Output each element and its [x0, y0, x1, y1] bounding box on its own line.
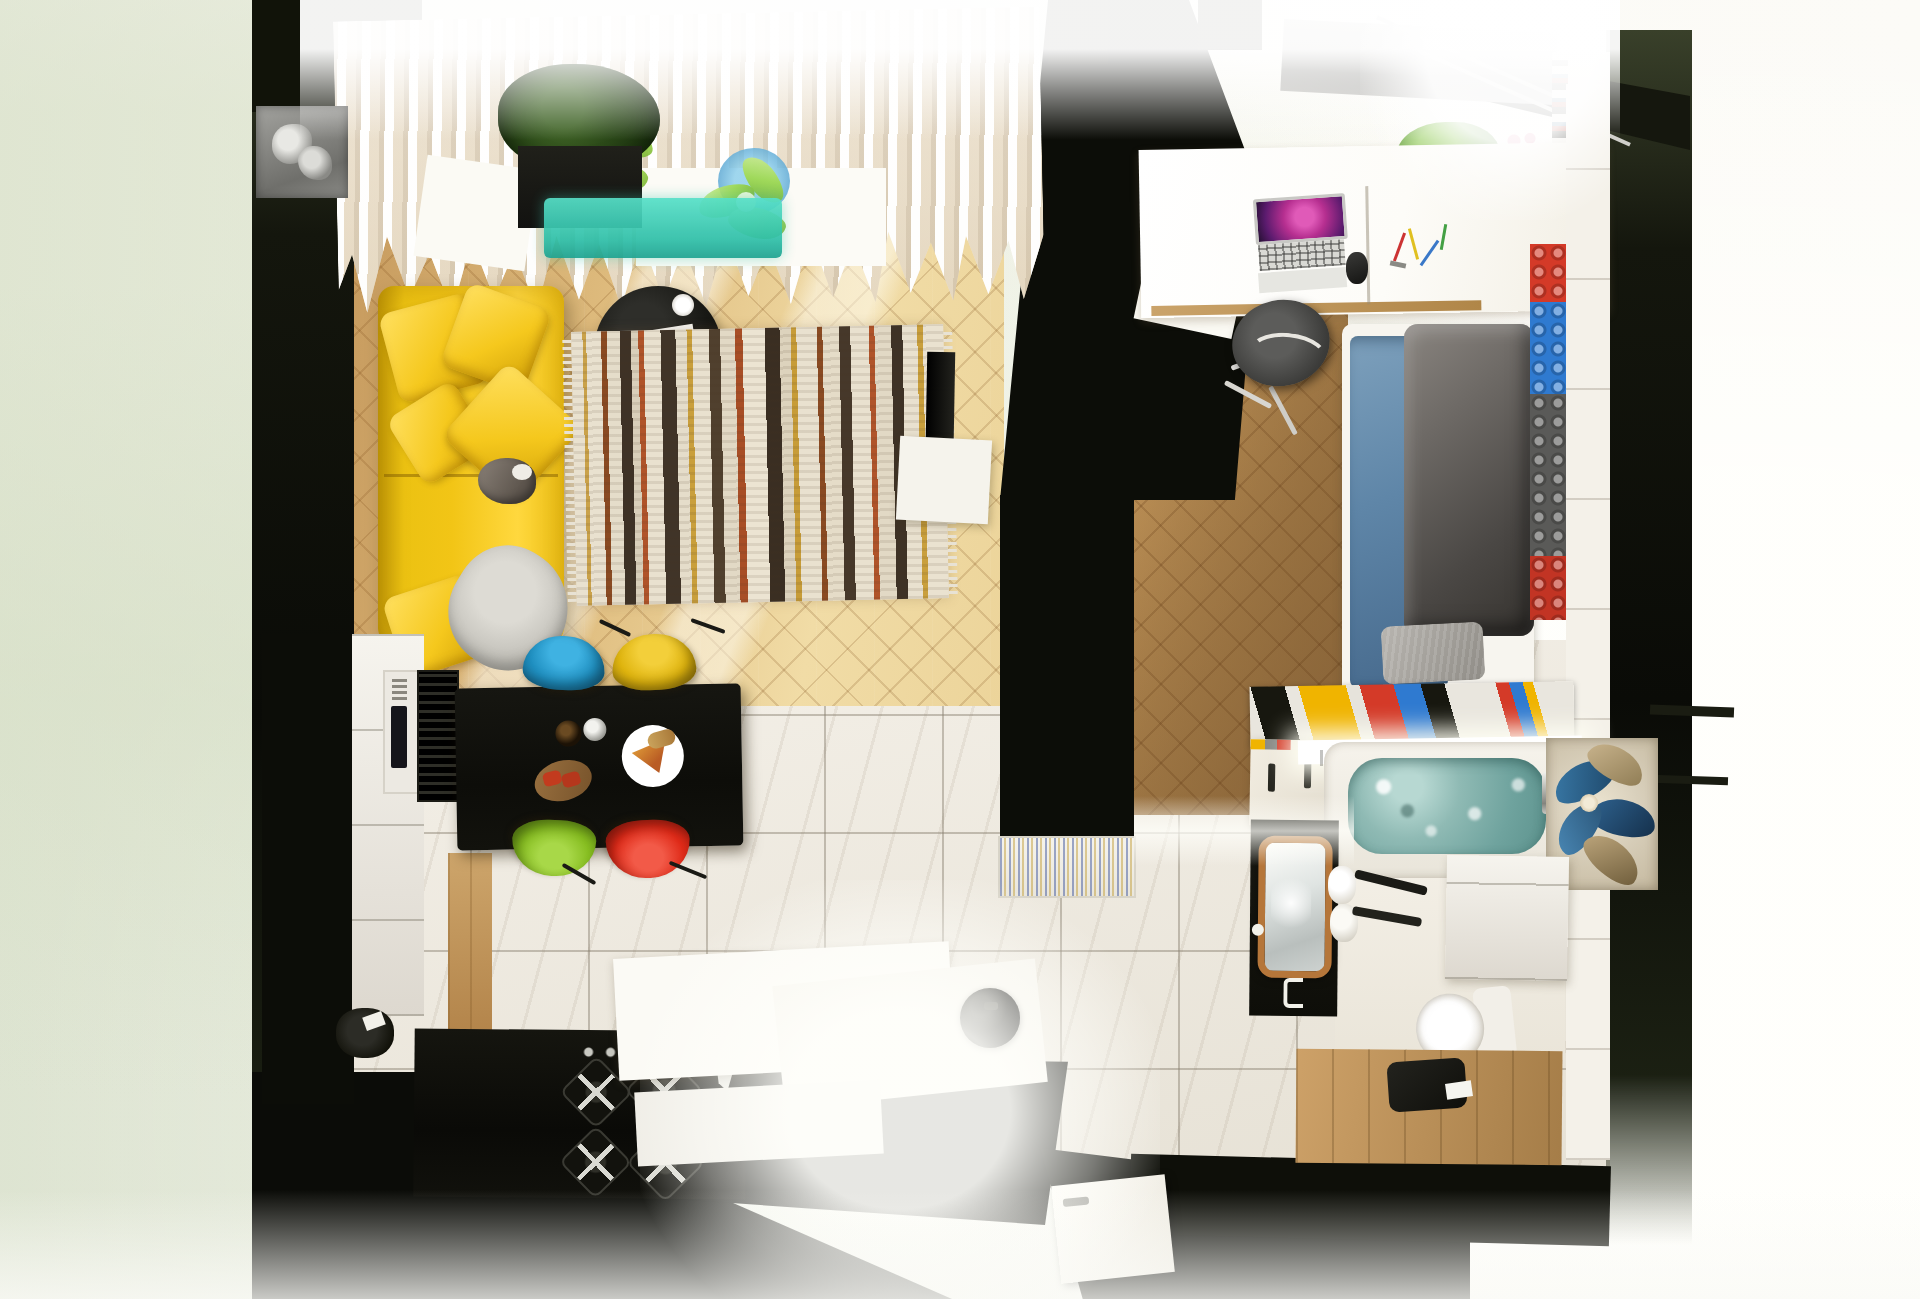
- coffee-cup: [672, 294, 694, 316]
- ac-radiator-unit: [256, 106, 348, 198]
- microwave-window: [391, 706, 407, 768]
- mirror-glare: [1271, 873, 1312, 933]
- patterned-doormat: [998, 836, 1136, 898]
- wardrobe-lego-chip: [1251, 739, 1291, 750]
- bathroom-bottom-wall: [1129, 1154, 1611, 1247]
- office-chair: [1220, 300, 1350, 450]
- skylight-bar-2: [1198, 0, 1262, 50]
- door-hook: [1283, 978, 1303, 1008]
- boho-striped-rug: [571, 324, 949, 606]
- bruschetta-1: [542, 769, 563, 787]
- computer-mouse: [1346, 252, 1368, 284]
- lego-gray: [1530, 394, 1568, 556]
- gas-burner-3: [559, 1125, 633, 1199]
- chair-leg-2: [1268, 385, 1298, 435]
- chair-piping: [1243, 329, 1332, 389]
- sink-faucet: [336, 1008, 394, 1058]
- wine-bottle: [555, 720, 581, 746]
- rolled-towel-1: [1328, 866, 1356, 904]
- lego-red-bottom: [1530, 556, 1568, 620]
- right-exterior-wall: [1606, 30, 1692, 1245]
- wardrobe-handle-1: [1268, 764, 1275, 792]
- built-in-microwave: [383, 670, 419, 794]
- pizza-plate: [621, 725, 684, 788]
- microwave-buttons: [392, 678, 407, 700]
- vacuum-button: [984, 1002, 998, 1010]
- bruschetta-board: [530, 754, 596, 808]
- bed: [1342, 324, 1534, 696]
- pizza-slice-2: [646, 727, 677, 750]
- entry-door: [1051, 1174, 1175, 1283]
- gray-duvet: [1404, 324, 1534, 636]
- lego-trim-bar: [1250, 681, 1575, 747]
- gray-pillow: [1381, 621, 1486, 684]
- desk-seam: [1365, 186, 1370, 304]
- door-knob: [1252, 924, 1264, 936]
- skylight-bar-1: [1048, 0, 1108, 64]
- teal-glass-aquarium: [544, 198, 782, 258]
- water-caustics: [1348, 758, 1546, 854]
- laptop-screen: [1253, 193, 1348, 245]
- tv-console: [896, 436, 992, 525]
- door-handle: [1063, 1196, 1090, 1207]
- metal-flower-decor-2: [298, 146, 332, 180]
- dining-table: [455, 684, 744, 851]
- right-interior-wall: [1566, 84, 1610, 1160]
- cat: [478, 458, 536, 504]
- white-vanity: [1445, 855, 1569, 981]
- apartment-render: [0, 0, 1920, 1299]
- black-vent-grille: [417, 670, 459, 802]
- bruschetta-2: [561, 770, 582, 788]
- bath-water: [1348, 758, 1546, 854]
- cat-white-patch: [512, 464, 532, 480]
- mirror-door: [1249, 820, 1339, 1017]
- wood-floor-strip: [448, 853, 492, 1041]
- bathroom-left-wall: [1000, 495, 1134, 845]
- soap-card: [362, 1011, 386, 1031]
- laptop: [1253, 193, 1353, 293]
- metal-shaker: [583, 718, 606, 741]
- lego-blue: [1530, 302, 1568, 394]
- laptop-keyboard: [1258, 239, 1346, 271]
- mural-center: [1580, 794, 1598, 812]
- chair-seat: [1224, 291, 1338, 395]
- yellow-sofa: [378, 286, 564, 644]
- wardrobe-handle-2: [1304, 760, 1311, 788]
- lego-red-top: [1530, 244, 1568, 302]
- robot-vacuum: [960, 988, 1020, 1048]
- door-mirror: [1257, 836, 1332, 979]
- entry-console-slab-3: [634, 1080, 884, 1167]
- lego-accent-wall: [1530, 244, 1568, 620]
